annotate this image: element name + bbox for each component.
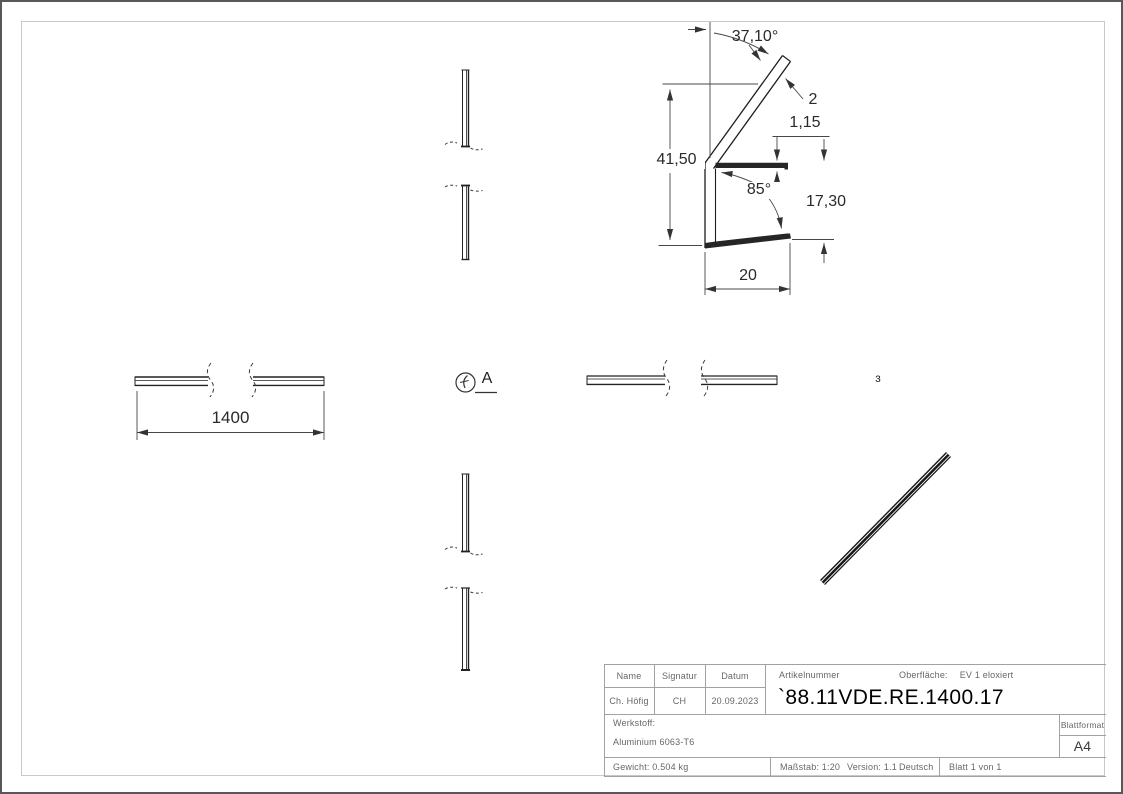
dimension-label-arm-thickness: 2: [803, 92, 823, 109]
dimension-label-width: 20: [728, 268, 768, 285]
value-name: Ch. Höfig: [604, 687, 654, 714]
dimension-label-overall-height: 41,50: [648, 152, 705, 169]
article-number: `88.11VDE.RE.1400.17: [778, 686, 1004, 710]
header-article-number: Artikelnummer: [779, 670, 840, 680]
dimension-label-length: 1400: [197, 409, 264, 427]
header-signature: Signatur: [654, 664, 705, 687]
dimension-label-top-angle: 37,10°: [715, 29, 795, 46]
surface-finish-value: EV 1 eloxiert: [960, 670, 1014, 680]
sheet-format-value: A4: [1059, 735, 1106, 757]
surface-finish-label: Oberfläche:: [899, 670, 948, 680]
isometric-view: [821, 453, 949, 583]
weight: Gewicht: 0.504 kg: [613, 757, 688, 777]
length-view: [135, 363, 324, 440]
material-value: Aluminium 6063-T6: [613, 737, 694, 747]
sheet-number: Blatt 1 von 1: [949, 757, 1002, 777]
side-view-bottom: [445, 474, 483, 670]
material-label: Werkstoff:: [613, 718, 655, 728]
scale: Maßstab: 1:20: [780, 757, 840, 777]
dimension-label-inner-height: 17,30: [797, 194, 855, 211]
header-date: Datum: [705, 664, 765, 687]
partial-glyph: ɜ: [871, 372, 885, 385]
surface-finish: Oberfläche: EV 1 eloxiert: [899, 670, 1013, 680]
language: Deutsch: [899, 757, 933, 777]
bottom-flange: [705, 234, 791, 249]
side-view-top: [445, 70, 483, 260]
detail-callout-label: A: [477, 371, 497, 388]
dimension-label-flange-thickness: 1,15: [774, 115, 836, 132]
side-view-right: [587, 360, 777, 396]
header-name: Name: [604, 664, 654, 687]
dimension-label-inner-angle: 85°: [737, 182, 781, 199]
drawing-page: 37,10° 2 1,15 41,50 85° 17,30 20 1400 A …: [0, 0, 1123, 794]
top-flange: [716, 163, 789, 170]
sheet-format-label: Blattformat: [1059, 714, 1106, 735]
version: Version: 1.1: [847, 757, 897, 777]
value-date: 20.09.2023: [705, 687, 765, 714]
value-signature: CH: [654, 687, 705, 714]
